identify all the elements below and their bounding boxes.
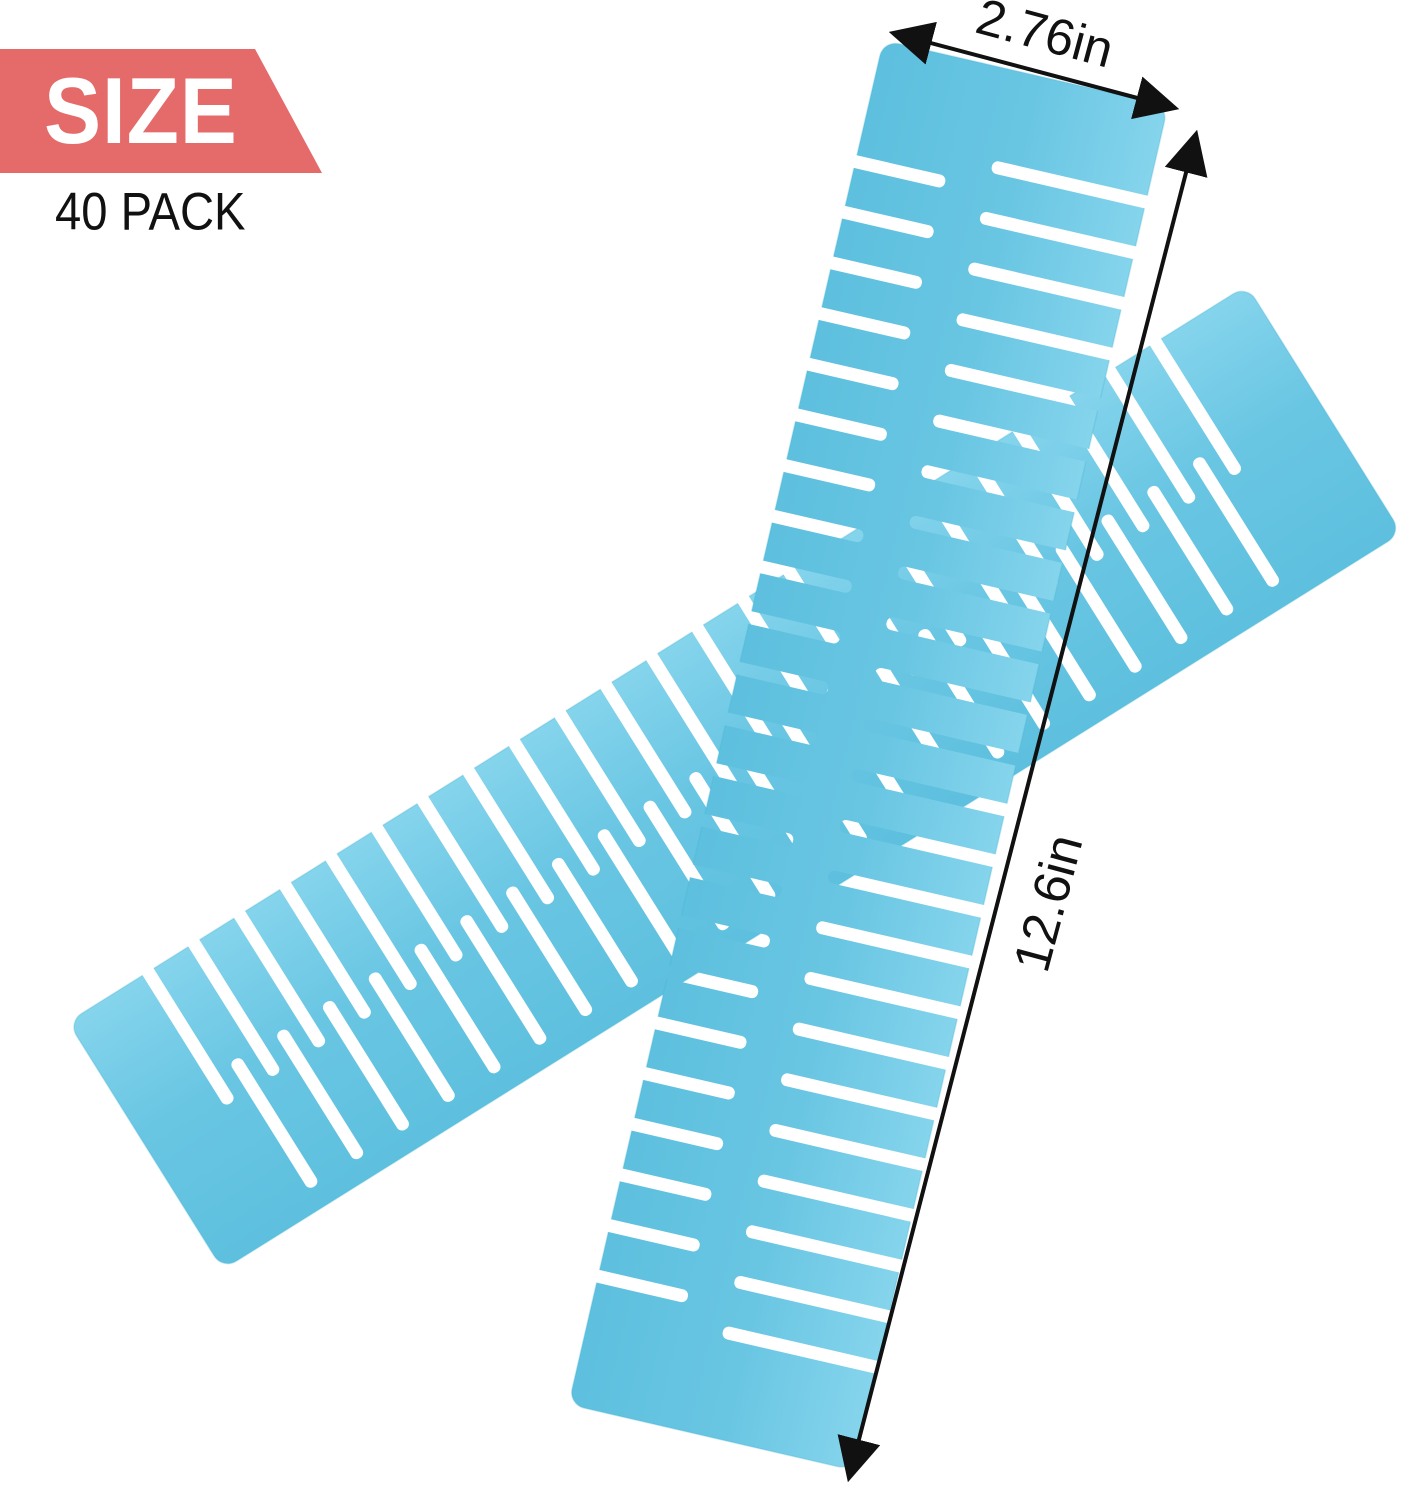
product-size-diagram: SIZE 40 PACK 2.76in 12.6in: [0, 0, 1416, 1494]
divider-strips: [68, 40, 1402, 1470]
pack-count-label: 40 PACK: [55, 186, 246, 239]
size-badge-label: SIZE: [44, 64, 238, 158]
